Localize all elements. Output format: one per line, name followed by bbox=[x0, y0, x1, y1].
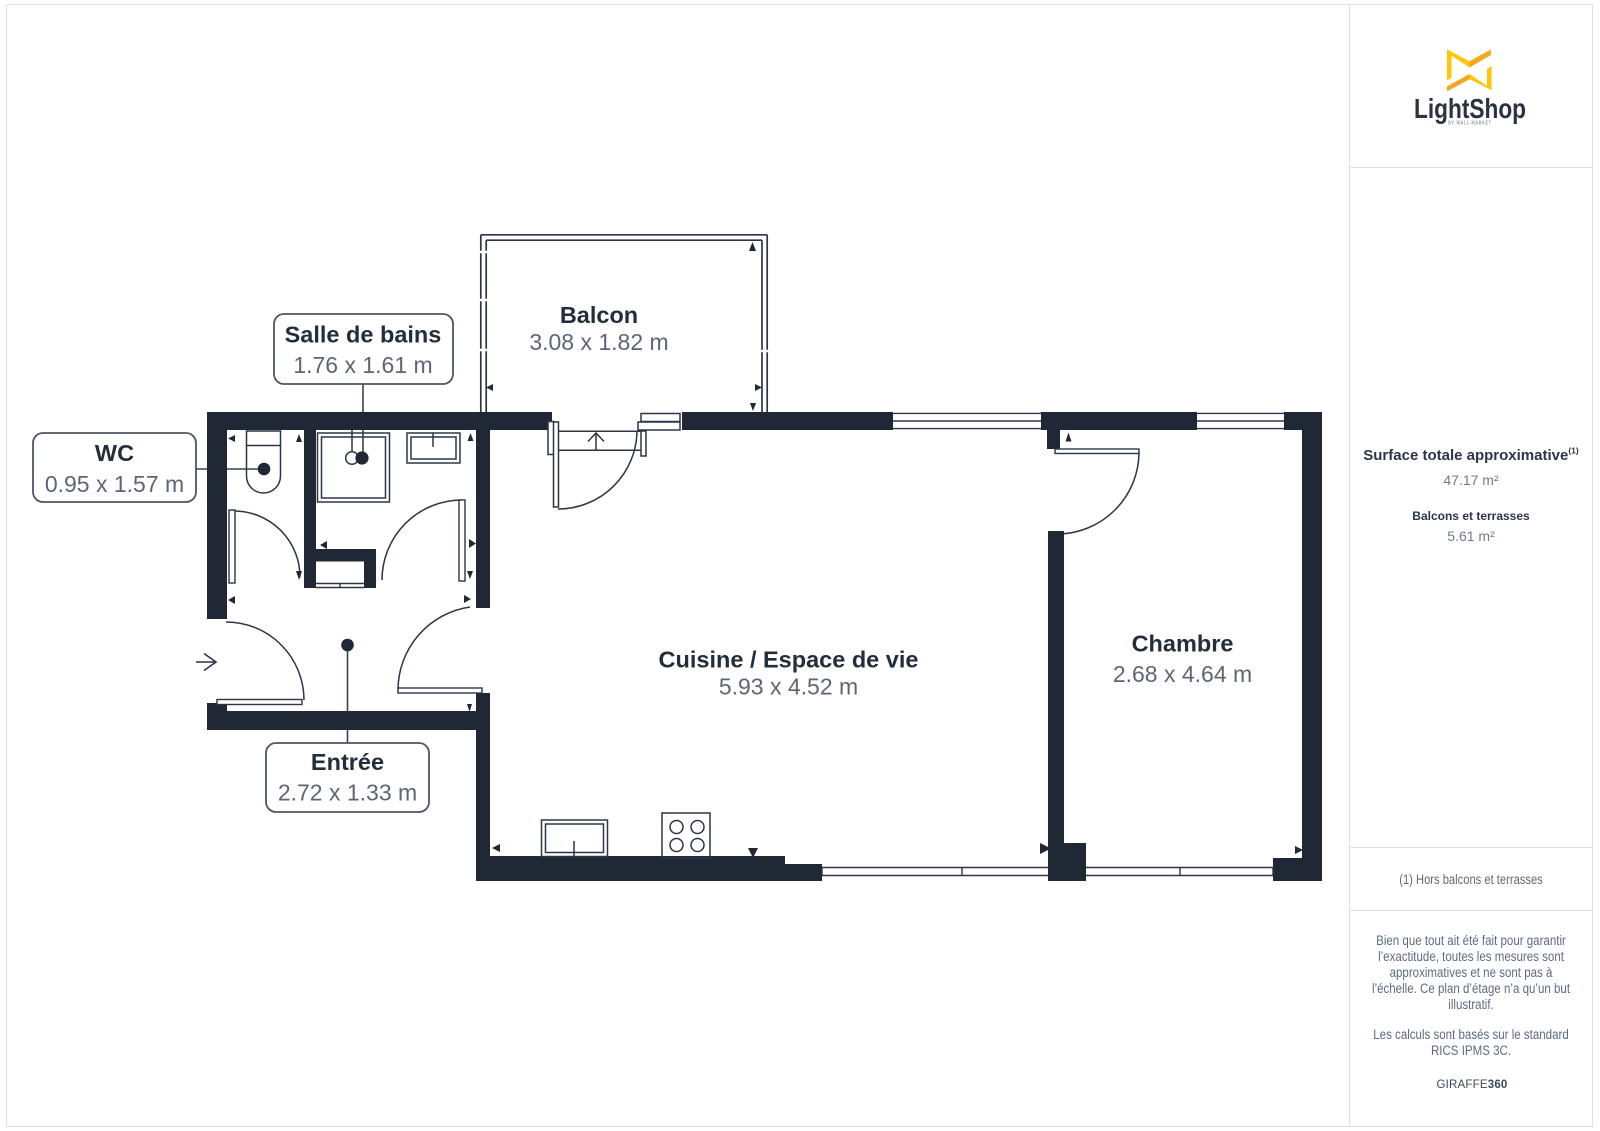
svg-text:illustratif.: illustratif. bbox=[1448, 997, 1494, 1012]
svg-text:47.17 m²: 47.17 m² bbox=[1443, 472, 1499, 488]
svg-text:3.08 x 1.82 m: 3.08 x 1.82 m bbox=[529, 329, 668, 355]
svg-text:Les calculs sont basés sur le: Les calculs sont basés sur le standard bbox=[1373, 1027, 1569, 1042]
svg-text:Chambre: Chambre bbox=[1132, 631, 1234, 657]
svg-text:Salle de bains: Salle de bains bbox=[285, 322, 442, 348]
svg-text:0.95 x 1.57 m: 0.95 x 1.57 m bbox=[45, 471, 184, 497]
svg-text:Cuisine / Espace de vie: Cuisine / Espace de vie bbox=[659, 647, 919, 673]
svg-text:approximatives et ne sont pas: approximatives et ne sont pas à bbox=[1390, 965, 1553, 980]
svg-text:WC: WC bbox=[95, 440, 134, 466]
svg-text:Surface totale approximative(1: Surface totale approximative(1) bbox=[1363, 446, 1579, 465]
svg-text:Bien que tout ait été fait pou: Bien que tout ait été fait pour garantir bbox=[1376, 933, 1566, 948]
svg-text:Balcons et terrasses: Balcons et terrasses bbox=[1412, 509, 1530, 523]
svg-text:2.72 x 1.33 m: 2.72 x 1.33 m bbox=[278, 780, 417, 806]
svg-text:l’exactitude, toutes les mesur: l’exactitude, toutes les mesures sont bbox=[1378, 949, 1564, 964]
svg-text:1.76 x 1.61 m: 1.76 x 1.61 m bbox=[293, 352, 432, 378]
svg-text:Entrée: Entrée bbox=[311, 749, 384, 775]
svg-text:l’échelle. Ce plan d’étage n’a: l’échelle. Ce plan d’étage n’a qu’un but bbox=[1372, 981, 1571, 996]
svg-text:Balcon: Balcon bbox=[560, 302, 638, 328]
svg-text:RICS IPMS 3C.: RICS IPMS 3C. bbox=[1431, 1043, 1511, 1058]
svg-text:GIRAFFE360: GIRAFFE360 bbox=[1436, 1079, 1507, 1091]
svg-text:5.93 x 4.52 m: 5.93 x 4.52 m bbox=[719, 674, 858, 700]
svg-text:2.68 x 4.64 m: 2.68 x 4.64 m bbox=[1113, 661, 1252, 687]
svg-text:(1) Hors balcons et terrasses: (1) Hors balcons et terrasses bbox=[1399, 872, 1543, 887]
svg-text:5.61 m²: 5.61 m² bbox=[1447, 528, 1495, 544]
svg-text:BY WALL-MARKET: BY WALL-MARKET bbox=[1448, 120, 1492, 127]
